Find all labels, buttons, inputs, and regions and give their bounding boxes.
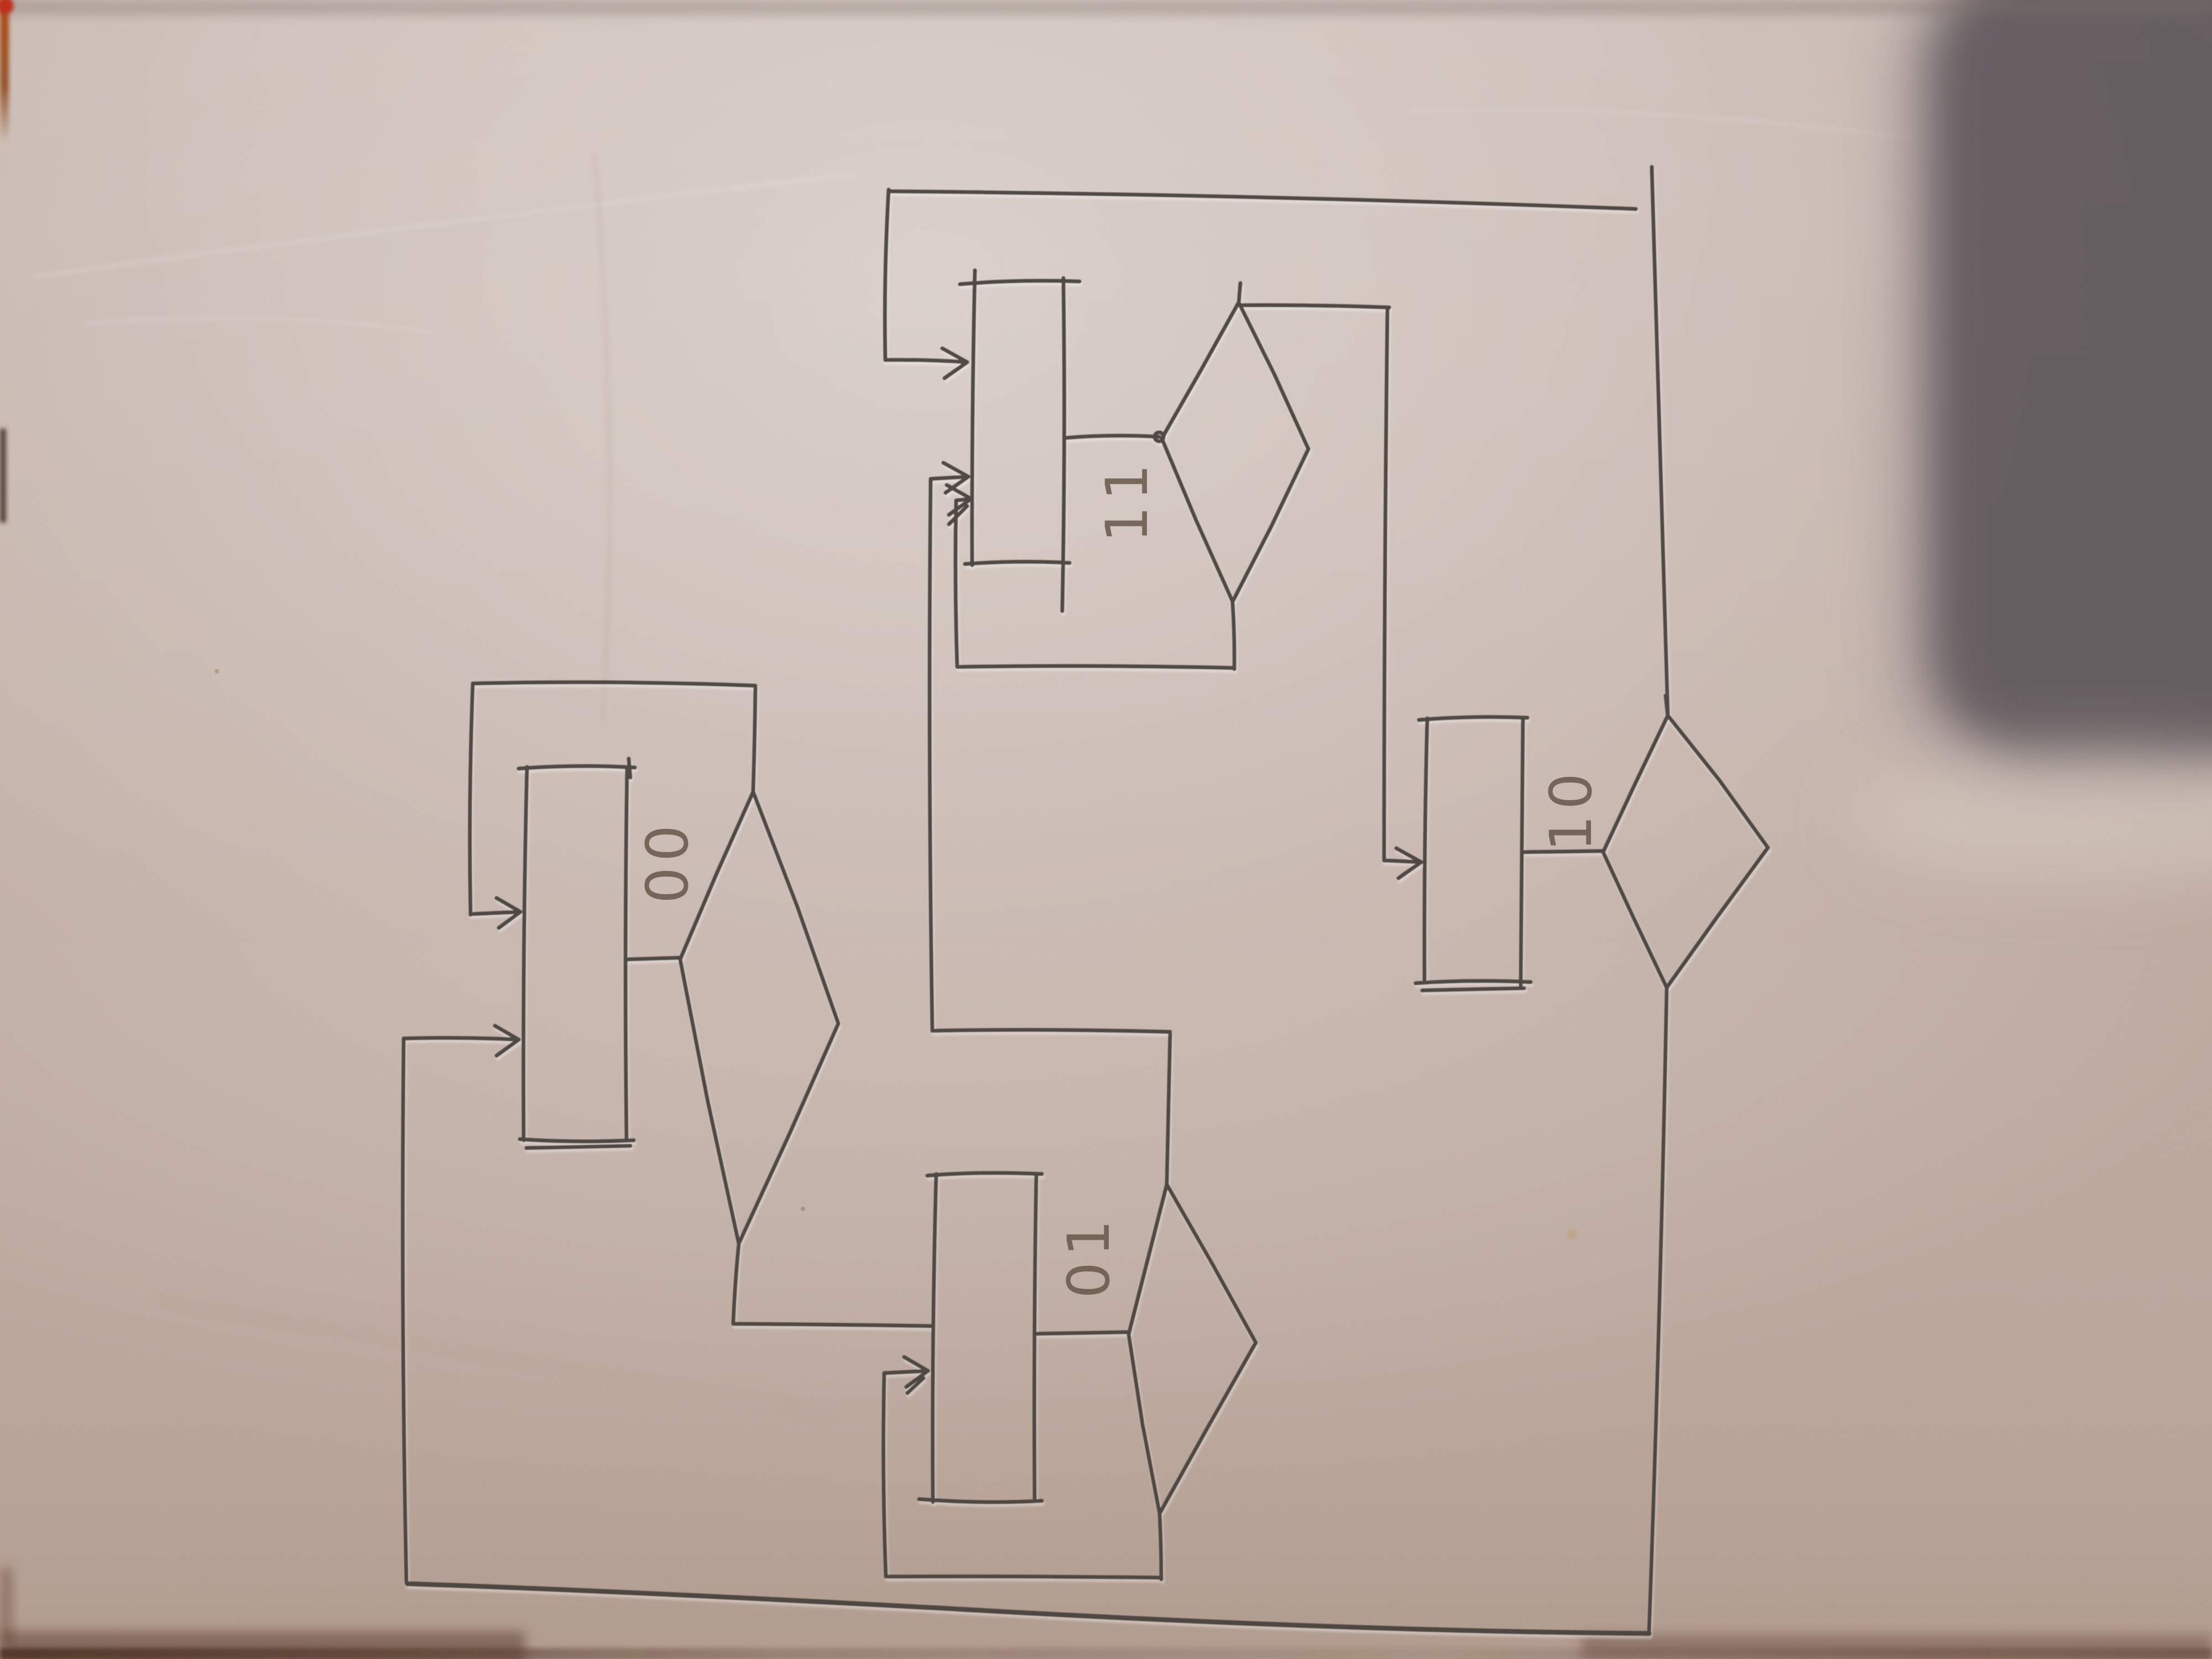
photo-grain-overlay <box>0 0 2212 1659</box>
diagram-canvas: 00 01 10 11 <box>0 0 2212 1659</box>
photo-of-paper-diagram: 00 01 10 11 <box>0 0 2212 1659</box>
